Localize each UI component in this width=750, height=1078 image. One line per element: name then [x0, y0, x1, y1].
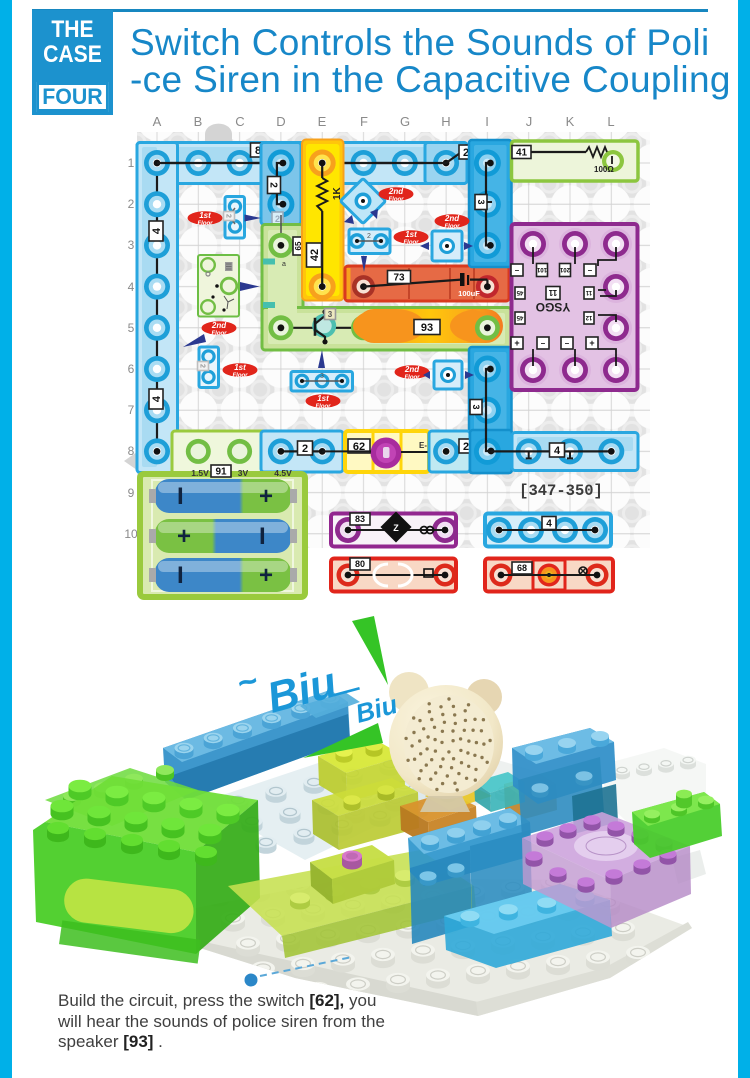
svg-text:42: 42 — [309, 249, 321, 261]
svg-text:3: 3 — [471, 404, 481, 409]
svg-text:Floor: Floor — [212, 331, 228, 337]
svg-text:2: 2 — [275, 214, 280, 224]
svg-text:1st: 1st — [317, 394, 329, 403]
svg-text:Floor: Floor — [389, 197, 405, 203]
svg-text:12: 12 — [585, 314, 592, 320]
svg-text:2: 2 — [199, 364, 206, 368]
svg-text:2nd: 2nd — [404, 365, 420, 374]
svg-text:G: G — [400, 114, 410, 129]
svg-text:J: J — [526, 114, 533, 129]
svg-text:+: + — [259, 483, 273, 510]
svg-text:2: 2 — [302, 443, 308, 455]
svg-text:I: I — [259, 523, 266, 550]
svg-text:A: A — [153, 114, 162, 129]
svg-text:1st: 1st — [199, 211, 211, 220]
svg-text:E: E — [318, 114, 327, 129]
svg-text:1st: 1st — [234, 363, 246, 372]
svg-text:2: 2 — [267, 182, 278, 188]
svg-text:1: 1 — [128, 156, 135, 170]
svg-text:L: L — [607, 114, 614, 129]
svg-text:2nd: 2nd — [211, 321, 227, 330]
svg-text:~: ~ — [233, 661, 262, 703]
svg-text:4: 4 — [151, 227, 163, 234]
svg-text:–: – — [565, 339, 570, 348]
svg-text:2nd: 2nd — [388, 187, 404, 196]
svg-text:–: – — [515, 266, 520, 275]
svg-text:45: 45 — [516, 314, 523, 320]
svg-text:Floor: Floor — [405, 375, 421, 381]
svg-text:[347-350]: [347-350] — [519, 482, 603, 500]
svg-text:+: + — [259, 562, 273, 589]
svg-text:45: 45 — [516, 289, 523, 295]
svg-text:100Ω: 100Ω — [594, 165, 614, 174]
svg-text:a: a — [282, 261, 286, 268]
svg-text:5: 5 — [128, 321, 135, 335]
svg-text:Floor: Floor — [404, 240, 420, 246]
svg-text:–: – — [541, 339, 546, 348]
svg-text:4: 4 — [128, 280, 135, 294]
svg-text:2nd: 2nd — [444, 214, 460, 223]
svg-text:3: 3 — [128, 238, 135, 252]
svg-text:11: 11 — [548, 288, 557, 297]
svg-text:+: + — [589, 338, 594, 348]
svg-text:80: 80 — [355, 559, 365, 569]
svg-text:1st: 1st — [405, 230, 417, 239]
svg-text:B: B — [194, 114, 203, 129]
svg-text:73: 73 — [393, 273, 405, 284]
svg-text:–: – — [588, 266, 593, 275]
svg-text:Z: Z — [393, 523, 399, 533]
svg-text:I: I — [485, 114, 489, 129]
svg-text:4: 4 — [151, 395, 163, 402]
svg-text:3: 3 — [476, 199, 486, 204]
svg-text:1.5V: 1.5V — [191, 468, 209, 478]
svg-text:+: + — [514, 338, 519, 348]
svg-text:4: 4 — [546, 519, 552, 530]
svg-text:101: 101 — [536, 266, 547, 272]
svg-text:H: H — [441, 114, 450, 129]
svg-text:Floor: Floor — [233, 373, 249, 379]
svg-text:3V: 3V — [238, 468, 249, 478]
svg-text:YSGO: YSGO — [536, 300, 571, 314]
svg-text:Floor: Floor — [445, 224, 461, 230]
svg-text:2: 2 — [128, 197, 135, 211]
svg-text:91: 91 — [215, 467, 227, 478]
svg-text:Floor: Floor — [316, 404, 332, 410]
svg-text:93: 93 — [421, 322, 433, 334]
svg-text:D: D — [276, 114, 285, 129]
svg-text:4: 4 — [554, 445, 561, 457]
svg-text:41: 41 — [516, 148, 528, 159]
svg-text:+: + — [177, 523, 191, 550]
svg-text:2: 2 — [463, 441, 469, 453]
svg-text:100uF: 100uF — [458, 289, 480, 298]
svg-text:I: I — [177, 483, 184, 510]
svg-text:C: C — [235, 114, 244, 129]
svg-text:F: F — [360, 114, 368, 129]
svg-text:4.5V: 4.5V — [274, 468, 292, 478]
svg-text:3: 3 — [328, 310, 333, 319]
svg-text:201: 201 — [559, 266, 570, 272]
svg-text:Floor: Floor — [198, 221, 214, 227]
svg-text:6: 6 — [128, 362, 135, 376]
svg-text:10: 10 — [124, 527, 138, 541]
svg-text:83: 83 — [355, 514, 365, 524]
svg-text:I: I — [177, 562, 184, 589]
svg-text:K: K — [566, 114, 575, 129]
svg-text:68: 68 — [517, 563, 527, 573]
svg-text:3: 3 — [320, 373, 324, 380]
svg-text:11: 11 — [585, 289, 592, 295]
svg-text:7: 7 — [128, 403, 135, 417]
svg-text:9: 9 — [128, 486, 135, 500]
svg-text:2: 2 — [225, 214, 232, 218]
svg-text:2: 2 — [367, 233, 371, 240]
